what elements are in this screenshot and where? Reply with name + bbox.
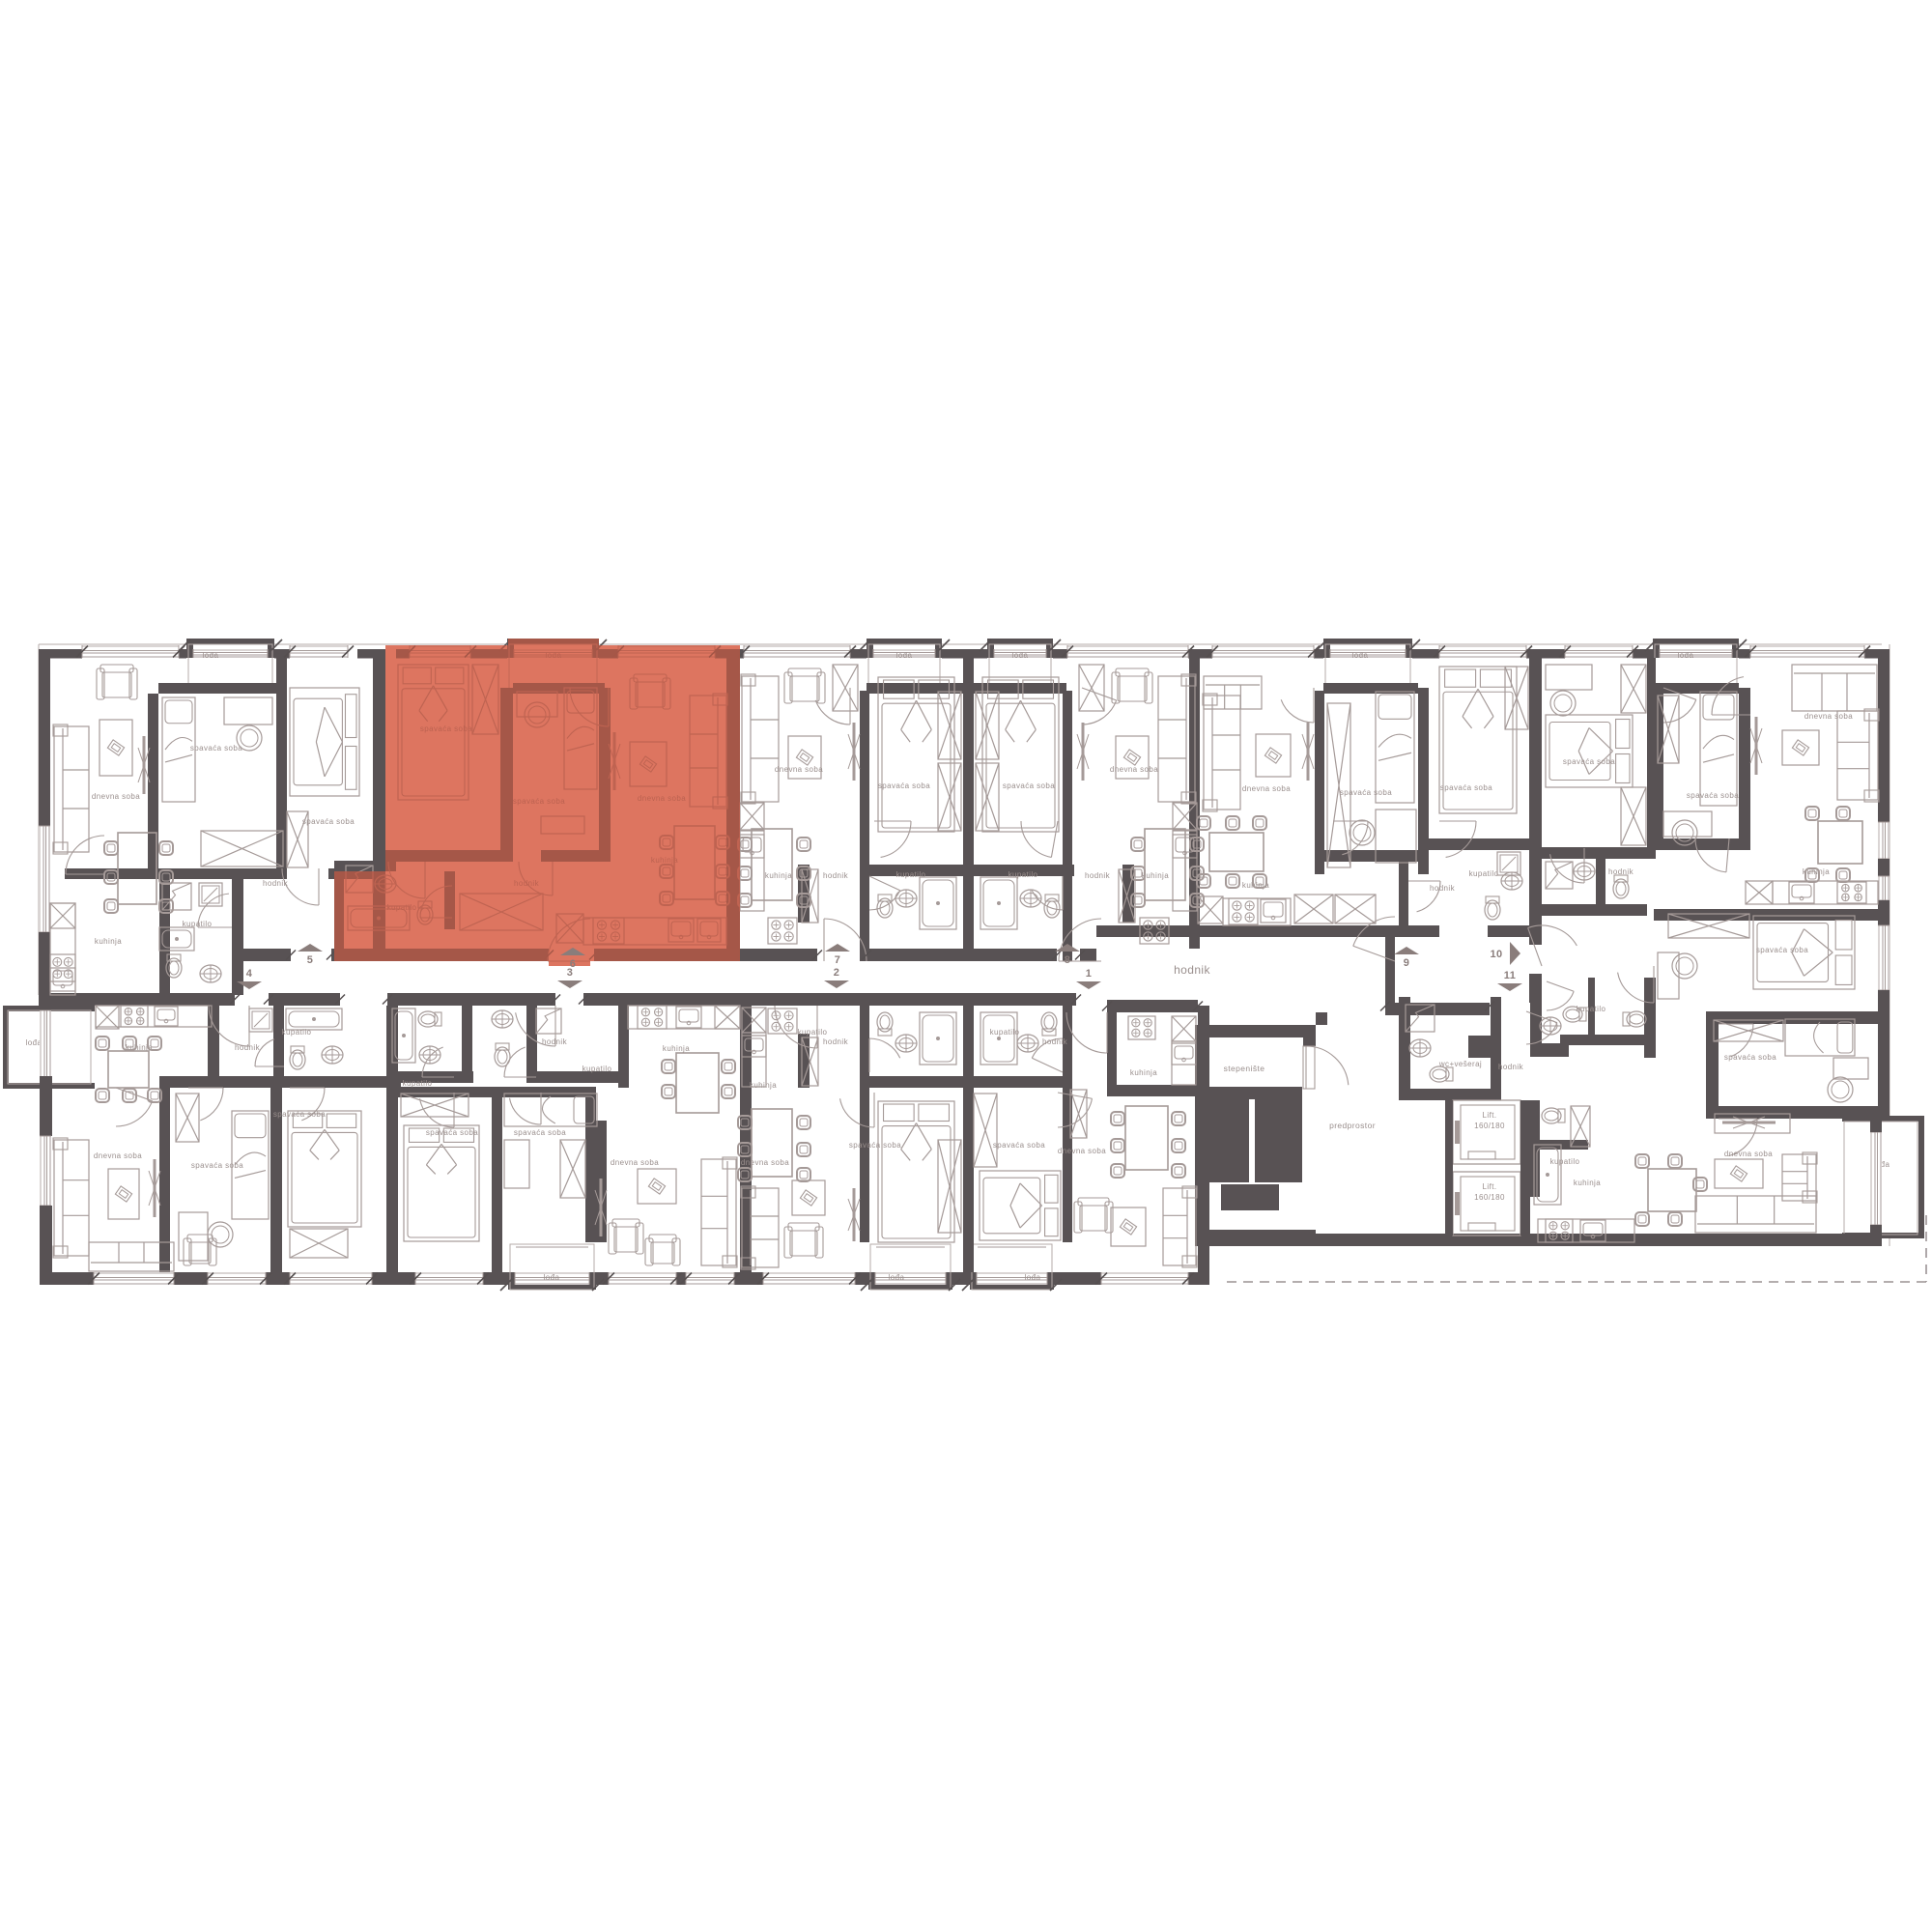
svg-text:spavaća soba: spavaća soba (1724, 1053, 1776, 1062)
svg-text:hodnik: hodnik (1498, 1063, 1524, 1071)
svg-text:dnevna soba: dnevna soba (1724, 1150, 1773, 1158)
svg-text:dnevna soba: dnevna soba (92, 792, 140, 801)
svg-text:lođa: lođa (1352, 651, 1369, 660)
svg-text:spavaća soba: spavaća soba (1440, 783, 1492, 792)
svg-text:spavaća soba: spavaća soba (190, 744, 242, 753)
svg-text:dnevna soba: dnevna soba (611, 1158, 659, 1167)
svg-text:dnevna soba: dnevna soba (1058, 1147, 1106, 1155)
svg-text:kupatilo: kupatilo (798, 1028, 828, 1037)
svg-text:kupatilo: kupatilo (1009, 870, 1038, 879)
svg-text:hodnik: hodnik (1042, 1037, 1068, 1046)
svg-text:kupatilo: kupatilo (990, 1028, 1020, 1037)
svg-text:kuhinja: kuhinja (750, 1081, 777, 1090)
svg-text:kuhinja: kuhinja (1574, 1179, 1601, 1187)
svg-text:lođa: lođa (544, 1273, 560, 1282)
svg-text:hodnik: hodnik (823, 871, 849, 880)
svg-text:hodnik: hodnik (542, 1037, 568, 1046)
svg-text:dnevna soba: dnevna soba (1110, 765, 1158, 774)
svg-text:hodnik: hodnik (1430, 884, 1456, 893)
svg-text:spavaća soba: spavaća soba (878, 781, 930, 790)
svg-text:lođa: lođa (1025, 1273, 1041, 1282)
svg-text:kuhinja: kuhinja (1130, 1068, 1157, 1077)
svg-text:3: 3 (567, 967, 574, 979)
svg-text:predprostor: predprostor (1329, 1121, 1376, 1130)
svg-text:kupatilo: kupatilo (582, 1065, 612, 1073)
svg-text:wc+vešeraj: wc+vešeraj (1438, 1060, 1482, 1068)
svg-text:kupatilo: kupatilo (1550, 1157, 1580, 1166)
svg-text:lođa: lođa (26, 1038, 43, 1047)
svg-text:1: 1 (1086, 968, 1093, 980)
svg-text:lođa: lođa (203, 651, 219, 660)
svg-text:kuhinja: kuhinja (95, 937, 122, 946)
svg-text:spavaća soba: spavaća soba (191, 1161, 243, 1170)
svg-text:spavaća soba: spavaća soba (849, 1141, 901, 1150)
svg-text:5: 5 (307, 954, 314, 966)
svg-text:spavaća soba: spavaća soba (1003, 781, 1055, 790)
svg-text:hodnik: hodnik (1085, 871, 1111, 880)
svg-text:7: 7 (835, 954, 841, 966)
svg-text:kuhinja: kuhinja (663, 1044, 690, 1053)
svg-text:hodnik: hodnik (823, 1037, 849, 1046)
svg-text:spavaća soba: spavaća soba (1340, 788, 1392, 797)
svg-text:kuhinja: kuhinja (1142, 871, 1169, 880)
svg-text:10: 10 (1490, 949, 1502, 960)
svg-text:kupatilo: kupatilo (1577, 1005, 1606, 1013)
svg-text:160/180: 160/180 (1474, 1122, 1505, 1130)
svg-text:kupatilo: kupatilo (896, 870, 926, 879)
svg-text:dnevna soba: dnevna soba (1242, 784, 1291, 793)
svg-text:dnevna soba: dnevna soba (94, 1151, 142, 1160)
svg-text:spavaća soba: spavaća soba (993, 1141, 1045, 1150)
svg-text:11: 11 (1504, 970, 1516, 981)
svg-text:spavaća soba: spavaća soba (1687, 791, 1739, 800)
svg-text:hodnik: hodnik (235, 1043, 261, 1052)
svg-text:dnevna soba: dnevna soba (775, 765, 823, 774)
svg-text:8: 8 (1065, 954, 1071, 966)
svg-text:kuhinja: kuhinja (765, 871, 792, 880)
svg-text:hodnik: hodnik (1174, 963, 1210, 977)
svg-text:lođa: lođa (1012, 651, 1029, 660)
svg-text:kupatilo: kupatilo (1469, 869, 1499, 878)
svg-text:Lift.: Lift. (1483, 1111, 1497, 1120)
svg-text:spavaća soba: spavaća soba (426, 1128, 478, 1137)
svg-text:lođa: lođa (1678, 651, 1694, 660)
svg-text:160/180: 160/180 (1474, 1193, 1505, 1202)
svg-text:Lift.: Lift. (1483, 1182, 1497, 1191)
svg-text:stepenište: stepenište (1224, 1064, 1265, 1073)
svg-text:spavaća soba: spavaća soba (1756, 946, 1808, 954)
svg-text:9: 9 (1404, 957, 1410, 969)
svg-text:4: 4 (246, 968, 253, 980)
svg-text:spavaća soba: spavaća soba (302, 817, 355, 826)
svg-text:lođa: lođa (896, 651, 913, 660)
svg-text:hodnik: hodnik (263, 879, 289, 888)
svg-text:spavaća soba: spavaća soba (514, 1128, 566, 1137)
svg-text:dnevna soba: dnevna soba (741, 1158, 789, 1167)
svg-text:dnevna soba: dnevna soba (1804, 712, 1853, 721)
svg-text:kupatilo: kupatilo (403, 1079, 433, 1088)
svg-text:spavaća soba: spavaća soba (1563, 757, 1615, 766)
svg-text:lođa: lođa (889, 1273, 905, 1282)
svg-text:2: 2 (834, 967, 840, 979)
